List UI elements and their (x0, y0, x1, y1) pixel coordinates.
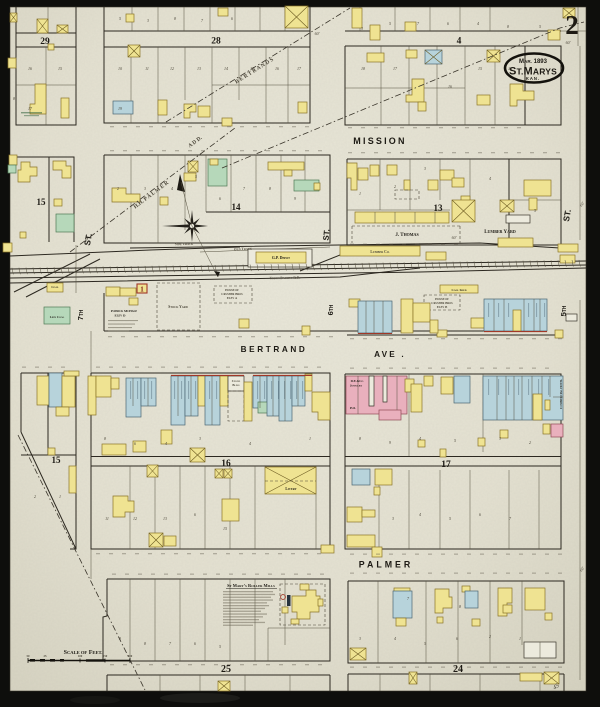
svg-text:2: 2 (394, 184, 396, 189)
svg-text:8: 8 (507, 24, 509, 29)
svg-text:2: 2 (489, 634, 491, 639)
svg-text:60′: 60′ (315, 31, 320, 36)
svg-text:25: 25 (221, 664, 231, 675)
svg-text:5: 5 (424, 641, 426, 646)
svg-text:P.O.: P.O. (350, 406, 356, 410)
svg-text:4: 4 (249, 441, 251, 446)
svg-text:17: 17 (441, 460, 451, 470)
svg-text:ELEV B: ELEV B (437, 305, 448, 309)
svg-text:100: 100 (78, 654, 83, 658)
svg-text:3: 3 (424, 166, 426, 171)
svg-text:CRUSHER BROS: CRUSHER BROS (221, 292, 243, 296)
svg-text:60′: 60′ (452, 235, 457, 240)
svg-text:6: 6 (456, 636, 458, 641)
svg-text:6: 6 (479, 512, 481, 517)
svg-text:3: 3 (392, 516, 394, 521)
svg-text:4: 4 (489, 176, 491, 181)
svg-text:COAL SHED: COAL SHED (452, 288, 467, 292)
svg-text:8: 8 (104, 436, 106, 441)
svg-text:15: 15 (223, 526, 227, 531)
svg-text:8: 8 (359, 436, 361, 441)
svg-text:60′: 60′ (566, 40, 571, 45)
svg-text:15: 15 (37, 197, 47, 207)
svg-text:13: 13 (163, 516, 167, 521)
svg-text:LINN COAL: LINN COAL (50, 315, 65, 319)
svg-text:24: 24 (453, 664, 463, 675)
svg-text:6: 6 (231, 16, 233, 21)
svg-text:G.P. DEPOT: G.P. DEPOT (272, 256, 290, 260)
svg-text:1: 1 (309, 436, 311, 441)
svg-text:16: 16 (275, 66, 279, 71)
svg-text:14: 14 (508, 66, 512, 71)
svg-text:15: 15 (250, 66, 254, 71)
svg-text:8: 8 (174, 16, 176, 21)
svg-text:LUMBER CO.: LUMBER CO. (370, 250, 390, 254)
svg-text:SIDE TRACK: SIDE TRACK (175, 242, 194, 246)
svg-text:9: 9 (294, 196, 296, 201)
svg-text:ST.: ST. (82, 233, 94, 247)
svg-text:29: 29 (40, 37, 50, 47)
svg-text:PALMER: PALMER (359, 560, 414, 570)
svg-text:3: 3 (144, 186, 146, 191)
svg-text:5: 5 (119, 16, 121, 21)
svg-text:13: 13 (197, 66, 201, 71)
svg-text:9: 9 (119, 636, 121, 641)
svg-text:13: 13 (434, 203, 444, 213)
svg-text:2: 2 (529, 440, 531, 445)
svg-text:3: 3 (359, 636, 361, 641)
svg-text:3: 3 (199, 436, 201, 441)
svg-text:12: 12 (133, 516, 137, 521)
svg-text:3: 3 (147, 18, 149, 23)
svg-text:4: 4 (419, 436, 421, 441)
svg-text:6: 6 (194, 512, 196, 517)
svg-text:6: 6 (134, 441, 136, 446)
svg-text:COMMERCIAL HOTEL: COMMERCIAL HOTEL (559, 379, 563, 409)
svg-text:UNION PACIFIC R.R.: UNION PACIFIC R.R. (270, 276, 301, 281)
svg-text:1: 1 (519, 636, 521, 641)
svg-text:ST MARY’S ROLLER MILLS: ST MARY’S ROLLER MILLS (227, 583, 275, 588)
svg-text:5: 5 (219, 644, 221, 649)
svg-text:8: 8 (13, 96, 15, 101)
svg-text:6: 6 (447, 21, 449, 26)
svg-text:KAN.: KAN. (526, 76, 540, 81)
svg-text:OLD TRACK: OLD TRACK (234, 247, 253, 252)
svg-text:BLDG: BLDG (232, 383, 239, 387)
svg-text:6: 6 (194, 641, 196, 646)
svg-text:2: 2 (565, 10, 579, 40)
svg-text:16: 16 (28, 66, 32, 71)
svg-text:5: 5 (389, 21, 391, 26)
svg-text:5: 5 (454, 438, 456, 443)
svg-text:10: 10 (118, 66, 122, 71)
svg-text:3: 3 (361, 26, 363, 31)
svg-text:15: 15 (52, 455, 62, 465)
svg-text:3: 3 (499, 436, 501, 441)
svg-text:D.E.&CO: D.E.&CO (351, 379, 364, 383)
svg-text:MAR. 1893: MAR. 1893 (519, 59, 548, 65)
svg-text:14: 14 (224, 66, 228, 71)
svg-text:28: 28 (211, 37, 221, 47)
svg-text:4: 4 (165, 441, 167, 446)
svg-text:15: 15 (58, 66, 62, 71)
svg-text:19: 19 (118, 106, 122, 111)
svg-text:11: 11 (145, 66, 149, 71)
svg-text:8: 8 (144, 641, 146, 646)
svg-text:5: 5 (539, 24, 541, 29)
svg-text:18: 18 (361, 66, 365, 71)
svg-text:4: 4 (394, 636, 396, 641)
svg-text:9: 9 (389, 440, 391, 445)
svg-text:JEWELRY: JEWELRY (350, 384, 362, 388)
svg-text:2: 2 (117, 186, 119, 191)
svg-text:ELEV A: ELEV A (227, 296, 238, 300)
svg-text:5: 5 (195, 174, 197, 179)
svg-text:200: 200 (128, 654, 133, 658)
svg-text:4: 4 (457, 37, 462, 47)
svg-text:CRUSHER BROS: CRUSHER BROS (431, 301, 453, 305)
svg-text:MISSION: MISSION (353, 136, 406, 146)
svg-text:LIVERY: LIVERY (285, 487, 296, 491)
svg-text:COAL: COAL (51, 285, 59, 289)
svg-text:6: 6 (219, 196, 221, 201)
svg-text:16: 16 (448, 84, 452, 89)
svg-text:ST.: ST. (322, 229, 332, 241)
svg-text:8: 8 (459, 604, 461, 609)
svg-text:16: 16 (221, 459, 231, 469)
svg-text:4: 4 (477, 21, 479, 26)
svg-text:2: 2 (34, 494, 36, 499)
svg-text:150: 150 (103, 654, 108, 658)
svg-text:8: 8 (269, 186, 271, 191)
svg-text:AVE .: AVE . (374, 350, 406, 359)
svg-text:5: 5 (534, 208, 536, 213)
svg-text:4: 4 (171, 186, 173, 191)
svg-text:15: 15 (478, 66, 482, 71)
svg-text:50: 50 (27, 654, 31, 658)
svg-text:PATRICK MCHALE: PATRICK MCHALE (111, 309, 137, 313)
svg-text:5: 5 (449, 516, 451, 521)
svg-text:BERTRAND: BERTRAND (241, 345, 308, 354)
svg-text:ELEV D: ELEV D (115, 314, 126, 318)
svg-text:12: 12 (170, 66, 174, 71)
svg-text:1: 1 (59, 494, 61, 499)
svg-text:11: 11 (105, 516, 109, 521)
svg-text:25: 25 (44, 654, 48, 658)
svg-text:14: 14 (232, 202, 242, 212)
svg-text:1: 1 (359, 191, 361, 196)
svg-text:4: 4 (419, 512, 421, 517)
svg-text:STOCK YARD: STOCK YARD (168, 305, 188, 309)
svg-text:1: 1 (140, 286, 144, 294)
svg-text:ST.: ST. (561, 209, 573, 223)
